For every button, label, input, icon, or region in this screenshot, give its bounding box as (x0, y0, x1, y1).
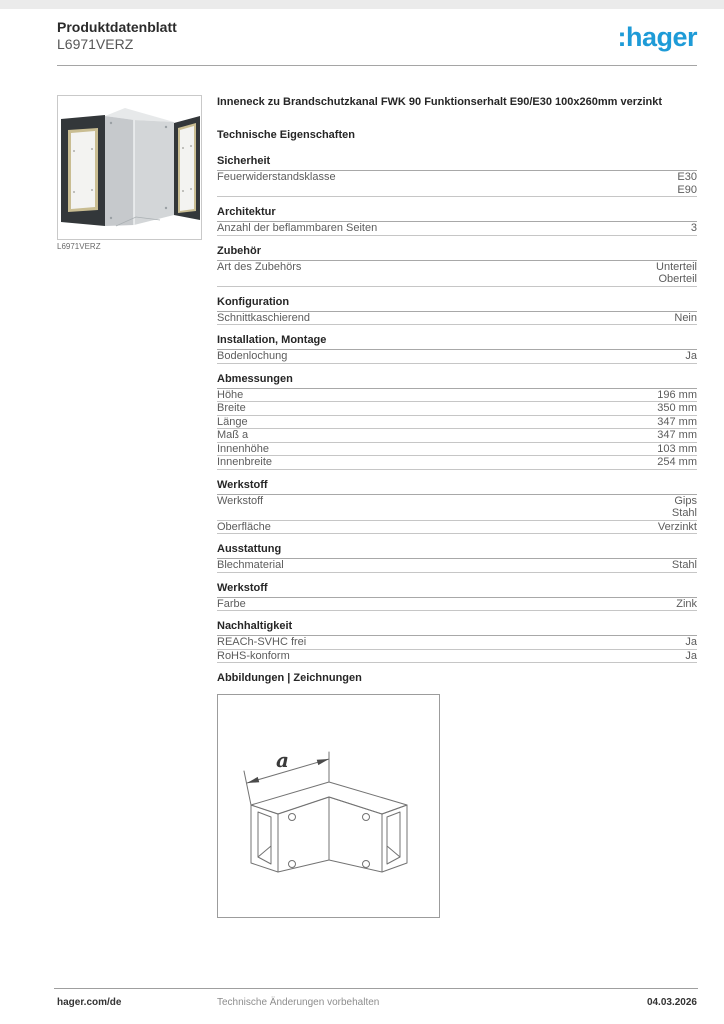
spec-section: Abmessungen Höhe 196 mm Breite 350 mm Lä… (217, 373, 697, 470)
document-type: Produktdatenblatt (57, 19, 177, 36)
spec-value: Verzinkt (658, 521, 697, 534)
spec-row: Bodenlochung Ja (217, 350, 697, 364)
spec-row: Feuerwiderstandsklasse E30E90 (217, 171, 697, 197)
spec-value-line: 350 mm (657, 402, 697, 415)
spec-value: 347 mm (657, 429, 697, 442)
technical-drawing-corner-isometric: a (218, 695, 439, 917)
spec-value-line: Zink (676, 598, 697, 611)
spec-sections: Sicherheit Feuerwiderstandsklasse E30E90… (217, 155, 697, 663)
spec-label: REACh-SVHC frei (217, 636, 306, 649)
spec-value-line: Ja (685, 636, 697, 649)
hager-logo: :hager (617, 22, 697, 52)
technical-drawing-frame: a (217, 694, 440, 918)
section-heading: Abmessungen (217, 373, 697, 389)
section-heading: Werkstoff (217, 479, 697, 495)
datasheet-page: Produktdatenblatt L6971VERZ :hager L6971… (0, 0, 724, 1024)
spec-value: UnterteilOberteil (656, 261, 697, 286)
spec-label: Bodenlochung (217, 350, 287, 363)
spec-row: Oberfläche Verzinkt (217, 521, 697, 535)
section-heading: Zubehör (217, 245, 697, 261)
section-rows: Art des Zubehörs UnterteilOberteil (217, 261, 697, 287)
spec-section: Architektur Anzahl der beflammbaren Seit… (217, 206, 697, 236)
spec-value: Ja (685, 636, 697, 649)
spec-section: Sicherheit Feuerwiderstandsklasse E30E90 (217, 155, 697, 197)
spec-row: Farbe Zink (217, 598, 697, 612)
spec-label: Anzahl der beflammbaren Seiten (217, 222, 377, 235)
footer-divider (54, 988, 698, 989)
tech-properties-heading: Technische Eigenschaften (217, 129, 697, 142)
spec-value: 254 mm (657, 456, 697, 469)
spec-value-line: 254 mm (657, 456, 697, 469)
spec-section: Ausstattung Blechmaterial Stahl (217, 543, 697, 573)
spec-value-line: E90 (677, 184, 697, 197)
spec-value-line: 347 mm (657, 416, 697, 429)
spec-value-line: Gips (672, 495, 697, 508)
spec-row: RoHS-konform Ja (217, 650, 697, 664)
page-top-edge (0, 0, 724, 9)
spec-label: Schnittkaschierend (217, 312, 310, 325)
spec-label: Oberfläche (217, 521, 271, 534)
spec-row: Werkstoff GipsStahl (217, 495, 697, 521)
spec-value: Zink (676, 598, 697, 611)
spec-label: Innenhöhe (217, 443, 269, 456)
dimension-arrow-left (247, 777, 259, 783)
header-divider (57, 65, 697, 66)
spec-row: Innenhöhe 103 mm (217, 443, 697, 457)
spec-row: Breite 350 mm (217, 402, 697, 416)
section-rows: Feuerwiderstandsklasse E30E90 (217, 171, 697, 197)
section-rows: Farbe Zink (217, 598, 697, 612)
spec-row: Maß a 347 mm (217, 429, 697, 443)
spec-value-line: Nein (674, 312, 697, 325)
spec-row: Blechmaterial Stahl (217, 559, 697, 573)
spec-section: Nachhaltigkeit REACh-SVHC frei Ja RoHS-k… (217, 620, 697, 663)
product-title: Inneneck zu Brandschutzkanal FWK 90 Funk… (217, 96, 697, 109)
spec-section: Konfiguration Schnittkaschierend Nein (217, 296, 697, 326)
spec-row: Länge 347 mm (217, 416, 697, 430)
spec-value-line: 196 mm (657, 389, 697, 402)
drawings-heading: Abbildungen | Zeichnungen (217, 672, 697, 685)
section-heading: Konfiguration (217, 296, 697, 312)
spec-section: Werkstoff Farbe Zink (217, 582, 697, 612)
dimension-arrow-right (317, 759, 329, 765)
section-heading: Werkstoff (217, 582, 697, 598)
section-rows: REACh-SVHC frei Ja RoHS-konform Ja (217, 636, 697, 663)
spec-value-line: 3 (691, 222, 697, 235)
section-heading: Ausstattung (217, 543, 697, 559)
section-heading: Nachhaltigkeit (217, 620, 697, 636)
spec-value-line: 347 mm (657, 429, 697, 442)
spec-label: Art des Zubehörs (217, 261, 301, 274)
spec-label: Maß a (217, 429, 248, 442)
spec-value-line: Ja (685, 650, 697, 663)
spec-value-line: Ja (685, 350, 697, 363)
spec-label: Höhe (217, 389, 243, 402)
spec-value-line: 103 mm (657, 443, 697, 456)
spec-value: 196 mm (657, 389, 697, 402)
section-heading: Installation, Montage (217, 334, 697, 350)
spec-value: 103 mm (657, 443, 697, 456)
spec-row: Anzahl der beflammbaren Seiten 3 (217, 222, 697, 236)
section-rows: Werkstoff GipsStahl Oberfläche Verzinkt (217, 495, 697, 535)
spec-value: E30E90 (677, 171, 697, 196)
spec-row: Art des Zubehörs UnterteilOberteil (217, 261, 697, 287)
spec-section: Installation, Montage Bodenlochung Ja (217, 334, 697, 364)
spec-value-line: Stahl (672, 507, 697, 520)
spec-value: Ja (685, 650, 697, 663)
document-reference: L6971VERZ (57, 36, 177, 53)
spec-value-line: E30 (677, 171, 697, 184)
spec-label: Innenbreite (217, 456, 272, 469)
product-photo (58, 96, 201, 239)
spec-value: 350 mm (657, 402, 697, 415)
product-image-caption: L6971VERZ (57, 242, 101, 251)
spec-column: Inneneck zu Brandschutzkanal FWK 90 Funk… (217, 96, 697, 918)
spec-label: Breite (217, 402, 246, 415)
footer-notice: Technische Änderungen vorbehalten (217, 997, 379, 1008)
section-rows: Bodenlochung Ja (217, 350, 697, 364)
header: Produktdatenblatt L6971VERZ (57, 19, 177, 53)
spec-section: Zubehör Art des Zubehörs UnterteilOberte… (217, 245, 697, 287)
spec-value: 347 mm (657, 416, 697, 429)
spec-value: Stahl (672, 559, 697, 572)
section-rows: Höhe 196 mm Breite 350 mm Länge 347 mm M… (217, 389, 697, 470)
spec-label: Länge (217, 416, 248, 429)
spec-value: GipsStahl (672, 495, 697, 520)
spec-value-line: Stahl (672, 559, 697, 572)
spec-value-line: Unterteil (656, 261, 697, 274)
footer-date: 04.03.2026 (647, 997, 697, 1008)
spec-label: Werkstoff (217, 495, 263, 508)
spec-section: Werkstoff Werkstoff GipsStahl Oberfläche… (217, 479, 697, 535)
spec-label: Blechmaterial (217, 559, 284, 572)
spec-label: Farbe (217, 598, 246, 611)
spec-row: Höhe 196 mm (217, 389, 697, 403)
section-rows: Anzahl der beflammbaren Seiten 3 (217, 222, 697, 236)
dimension-a-label: a (276, 748, 289, 772)
spec-row: Schnittkaschierend Nein (217, 312, 697, 326)
spec-value-line: Oberteil (656, 273, 697, 286)
section-rows: Blechmaterial Stahl (217, 559, 697, 573)
spec-value-line: Verzinkt (658, 521, 697, 534)
spec-row: Innenbreite 254 mm (217, 456, 697, 470)
spec-value: Ja (685, 350, 697, 363)
spec-label: RoHS-konform (217, 650, 290, 663)
product-image-frame (57, 95, 202, 240)
section-rows: Schnittkaschierend Nein (217, 312, 697, 326)
section-heading: Architektur (217, 206, 697, 222)
spec-value: Nein (674, 312, 697, 325)
spec-value: 3 (691, 222, 697, 235)
spec-label: Feuerwiderstandsklasse (217, 171, 336, 184)
footer-website-link[interactable]: hager.com/de (57, 997, 121, 1008)
section-heading: Sicherheit (217, 155, 697, 171)
spec-row: REACh-SVHC frei Ja (217, 636, 697, 650)
